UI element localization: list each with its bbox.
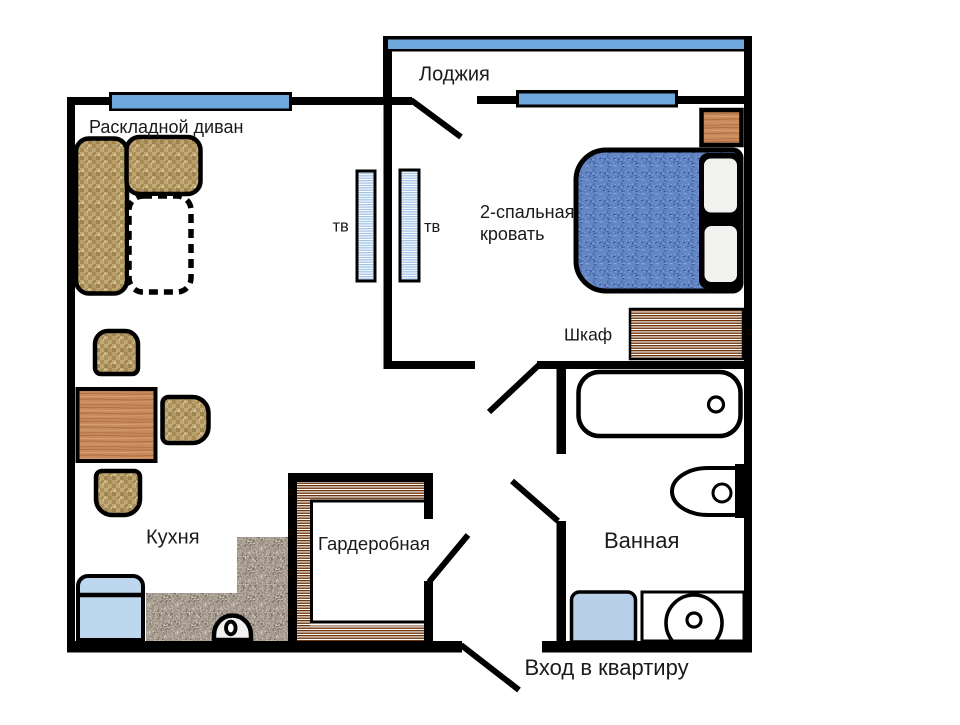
svg-text:Кухня: Кухня bbox=[146, 527, 200, 549]
svg-text:Раскладной диван: Раскладной диван bbox=[89, 117, 243, 137]
svg-text:тв: тв bbox=[424, 218, 441, 236]
svg-text:кровать: кровать bbox=[480, 224, 545, 244]
svg-text:Гардеробная: Гардеробная bbox=[318, 533, 430, 554]
svg-text:тв: тв bbox=[333, 218, 350, 236]
svg-text:Шкаф: Шкаф bbox=[564, 325, 612, 345]
svg-text:Лоджия: Лоджия bbox=[419, 64, 490, 86]
svg-text:2-спальная: 2-спальная bbox=[480, 202, 574, 222]
svg-text:Вход в квартиру: Вход в квартиру bbox=[525, 655, 689, 680]
svg-text:Ванная: Ванная bbox=[604, 528, 679, 553]
